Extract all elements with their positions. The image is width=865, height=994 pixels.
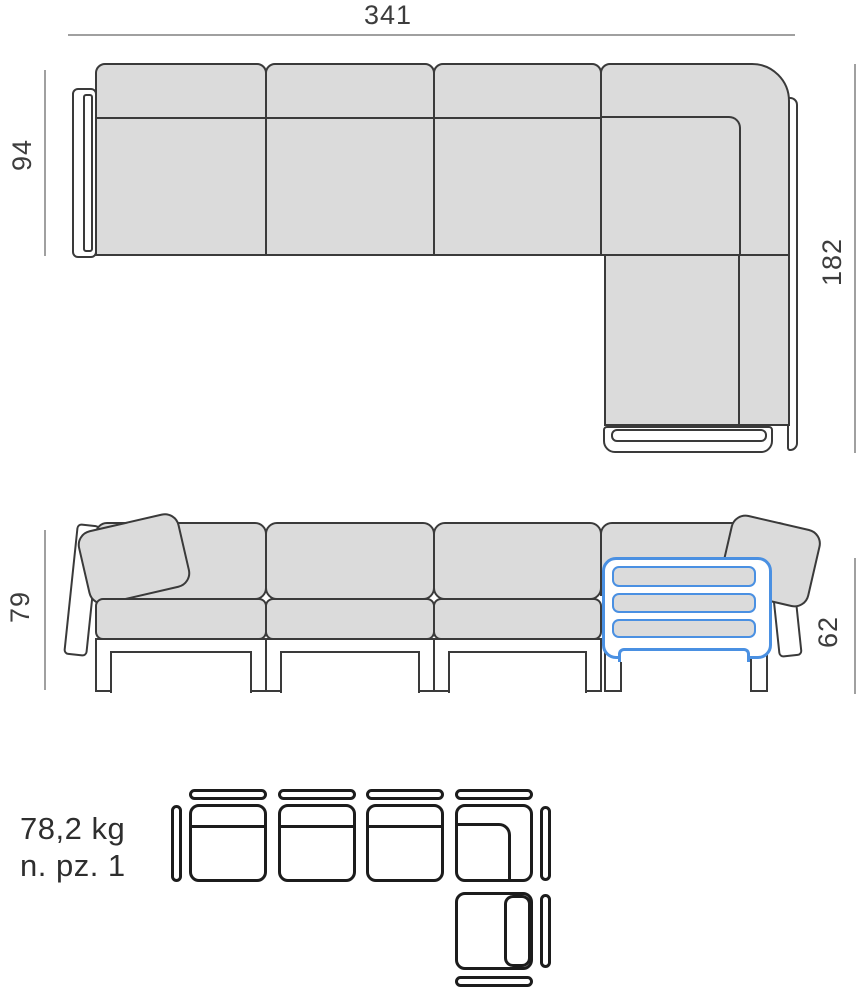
icon-back-2 <box>278 789 356 800</box>
dim-line-chaise-depth <box>854 64 856 453</box>
icon-armrest-left <box>171 805 182 882</box>
corner-frame-slat-2 <box>612 593 756 613</box>
icon-seat-chaise <box>455 892 533 970</box>
top-section-1-backrest-seam <box>96 117 266 119</box>
dim-line-side-depth <box>44 70 46 256</box>
top-section-3 <box>433 63 602 256</box>
icon-seat-corner-seam <box>458 823 511 879</box>
top-section-3-backrest-seam <box>434 117 601 119</box>
front-back-cushion-3 <box>433 522 602 600</box>
icon-back-3 <box>366 789 444 800</box>
corner-frame-slat-1 <box>612 566 756 587</box>
front-base-2 <box>265 638 435 692</box>
icon-back-corner <box>455 789 533 800</box>
highlighted-corner-module-frame <box>602 557 772 659</box>
spec-pieces: n. pz. 1 <box>20 847 126 884</box>
icon-chaise-end <box>455 976 533 987</box>
icon-seat-2-seam <box>280 825 354 828</box>
dim-line-arm-height <box>854 558 856 694</box>
icon-seat-3 <box>366 804 444 882</box>
top-section-1 <box>95 63 267 256</box>
front-base-3-cutout <box>448 651 587 693</box>
front-base-1 <box>95 638 267 692</box>
top-armrest-left-inner <box>83 94 93 252</box>
front-base-2-cutout <box>280 651 420 693</box>
corner-frame-slat-3 <box>612 619 756 638</box>
corner-frame-bottom-notch <box>618 648 750 662</box>
top-chaise-platform-inner <box>611 429 767 442</box>
icon-chaise-back-strip <box>504 895 531 967</box>
top-chaise <box>604 254 790 426</box>
front-back-cushion-2 <box>265 522 435 600</box>
spec-text: 78,2 kg n. pz. 1 <box>20 810 126 884</box>
front-seat-cushion-2 <box>265 598 435 640</box>
icon-armrest-chaise-right <box>540 894 551 968</box>
dim-label-chaise-depth: 182 <box>817 212 847 312</box>
spec-weight: 78,2 kg <box>20 810 126 847</box>
icon-seat-corner <box>455 804 533 882</box>
dim-line-total-width <box>68 34 795 36</box>
front-seat-cushion-3 <box>433 598 602 640</box>
dim-label-side-depth: 94 <box>7 115 37 195</box>
top-section-2-backrest-seam <box>266 117 434 119</box>
icon-seat-3-seam <box>368 825 442 828</box>
front-base-3 <box>433 638 602 692</box>
front-base-1-cutout <box>110 651 252 693</box>
icon-seat-1 <box>189 804 267 882</box>
top-corner-seat-seam <box>600 116 741 256</box>
icon-seat-2 <box>278 804 356 882</box>
sofa-dimension-diagram: 341 94 182 79 <box>0 0 865 994</box>
dim-line-back-height <box>44 530 46 690</box>
front-seat-cushion-1 <box>95 598 267 640</box>
icon-armrest-corner-right <box>540 806 551 881</box>
dim-label-back-height: 79 <box>5 567 35 647</box>
top-section-2 <box>265 63 435 256</box>
dim-label-total-width: 341 <box>338 0 438 30</box>
icon-seat-1-seam <box>191 825 265 828</box>
top-chaise-seam <box>738 256 740 424</box>
dim-label-arm-height: 62 <box>813 592 843 672</box>
icon-back-1 <box>189 789 267 800</box>
